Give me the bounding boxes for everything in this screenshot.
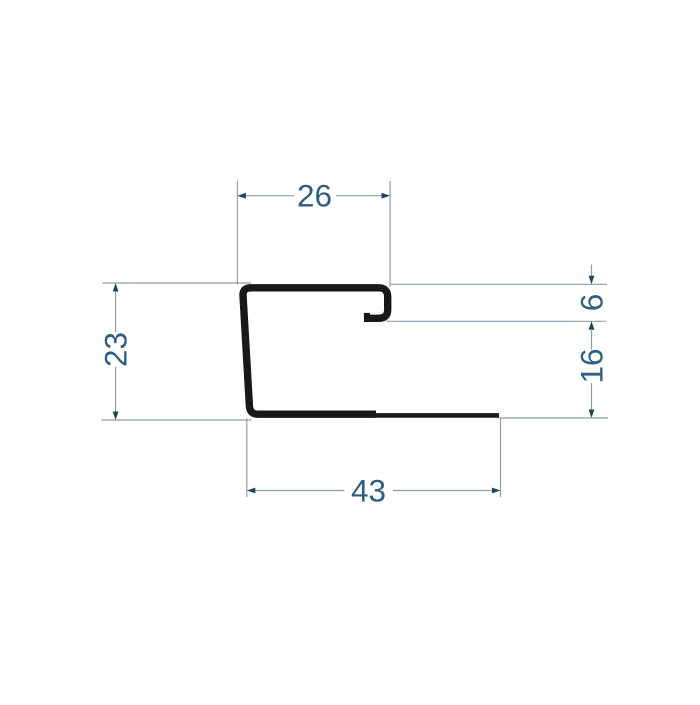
svg-text:43: 43 [351, 472, 386, 508]
svg-text:23: 23 [97, 332, 133, 367]
svg-text:6: 6 [573, 294, 609, 312]
svg-text:16: 16 [573, 348, 609, 383]
svg-text:26: 26 [297, 178, 332, 214]
